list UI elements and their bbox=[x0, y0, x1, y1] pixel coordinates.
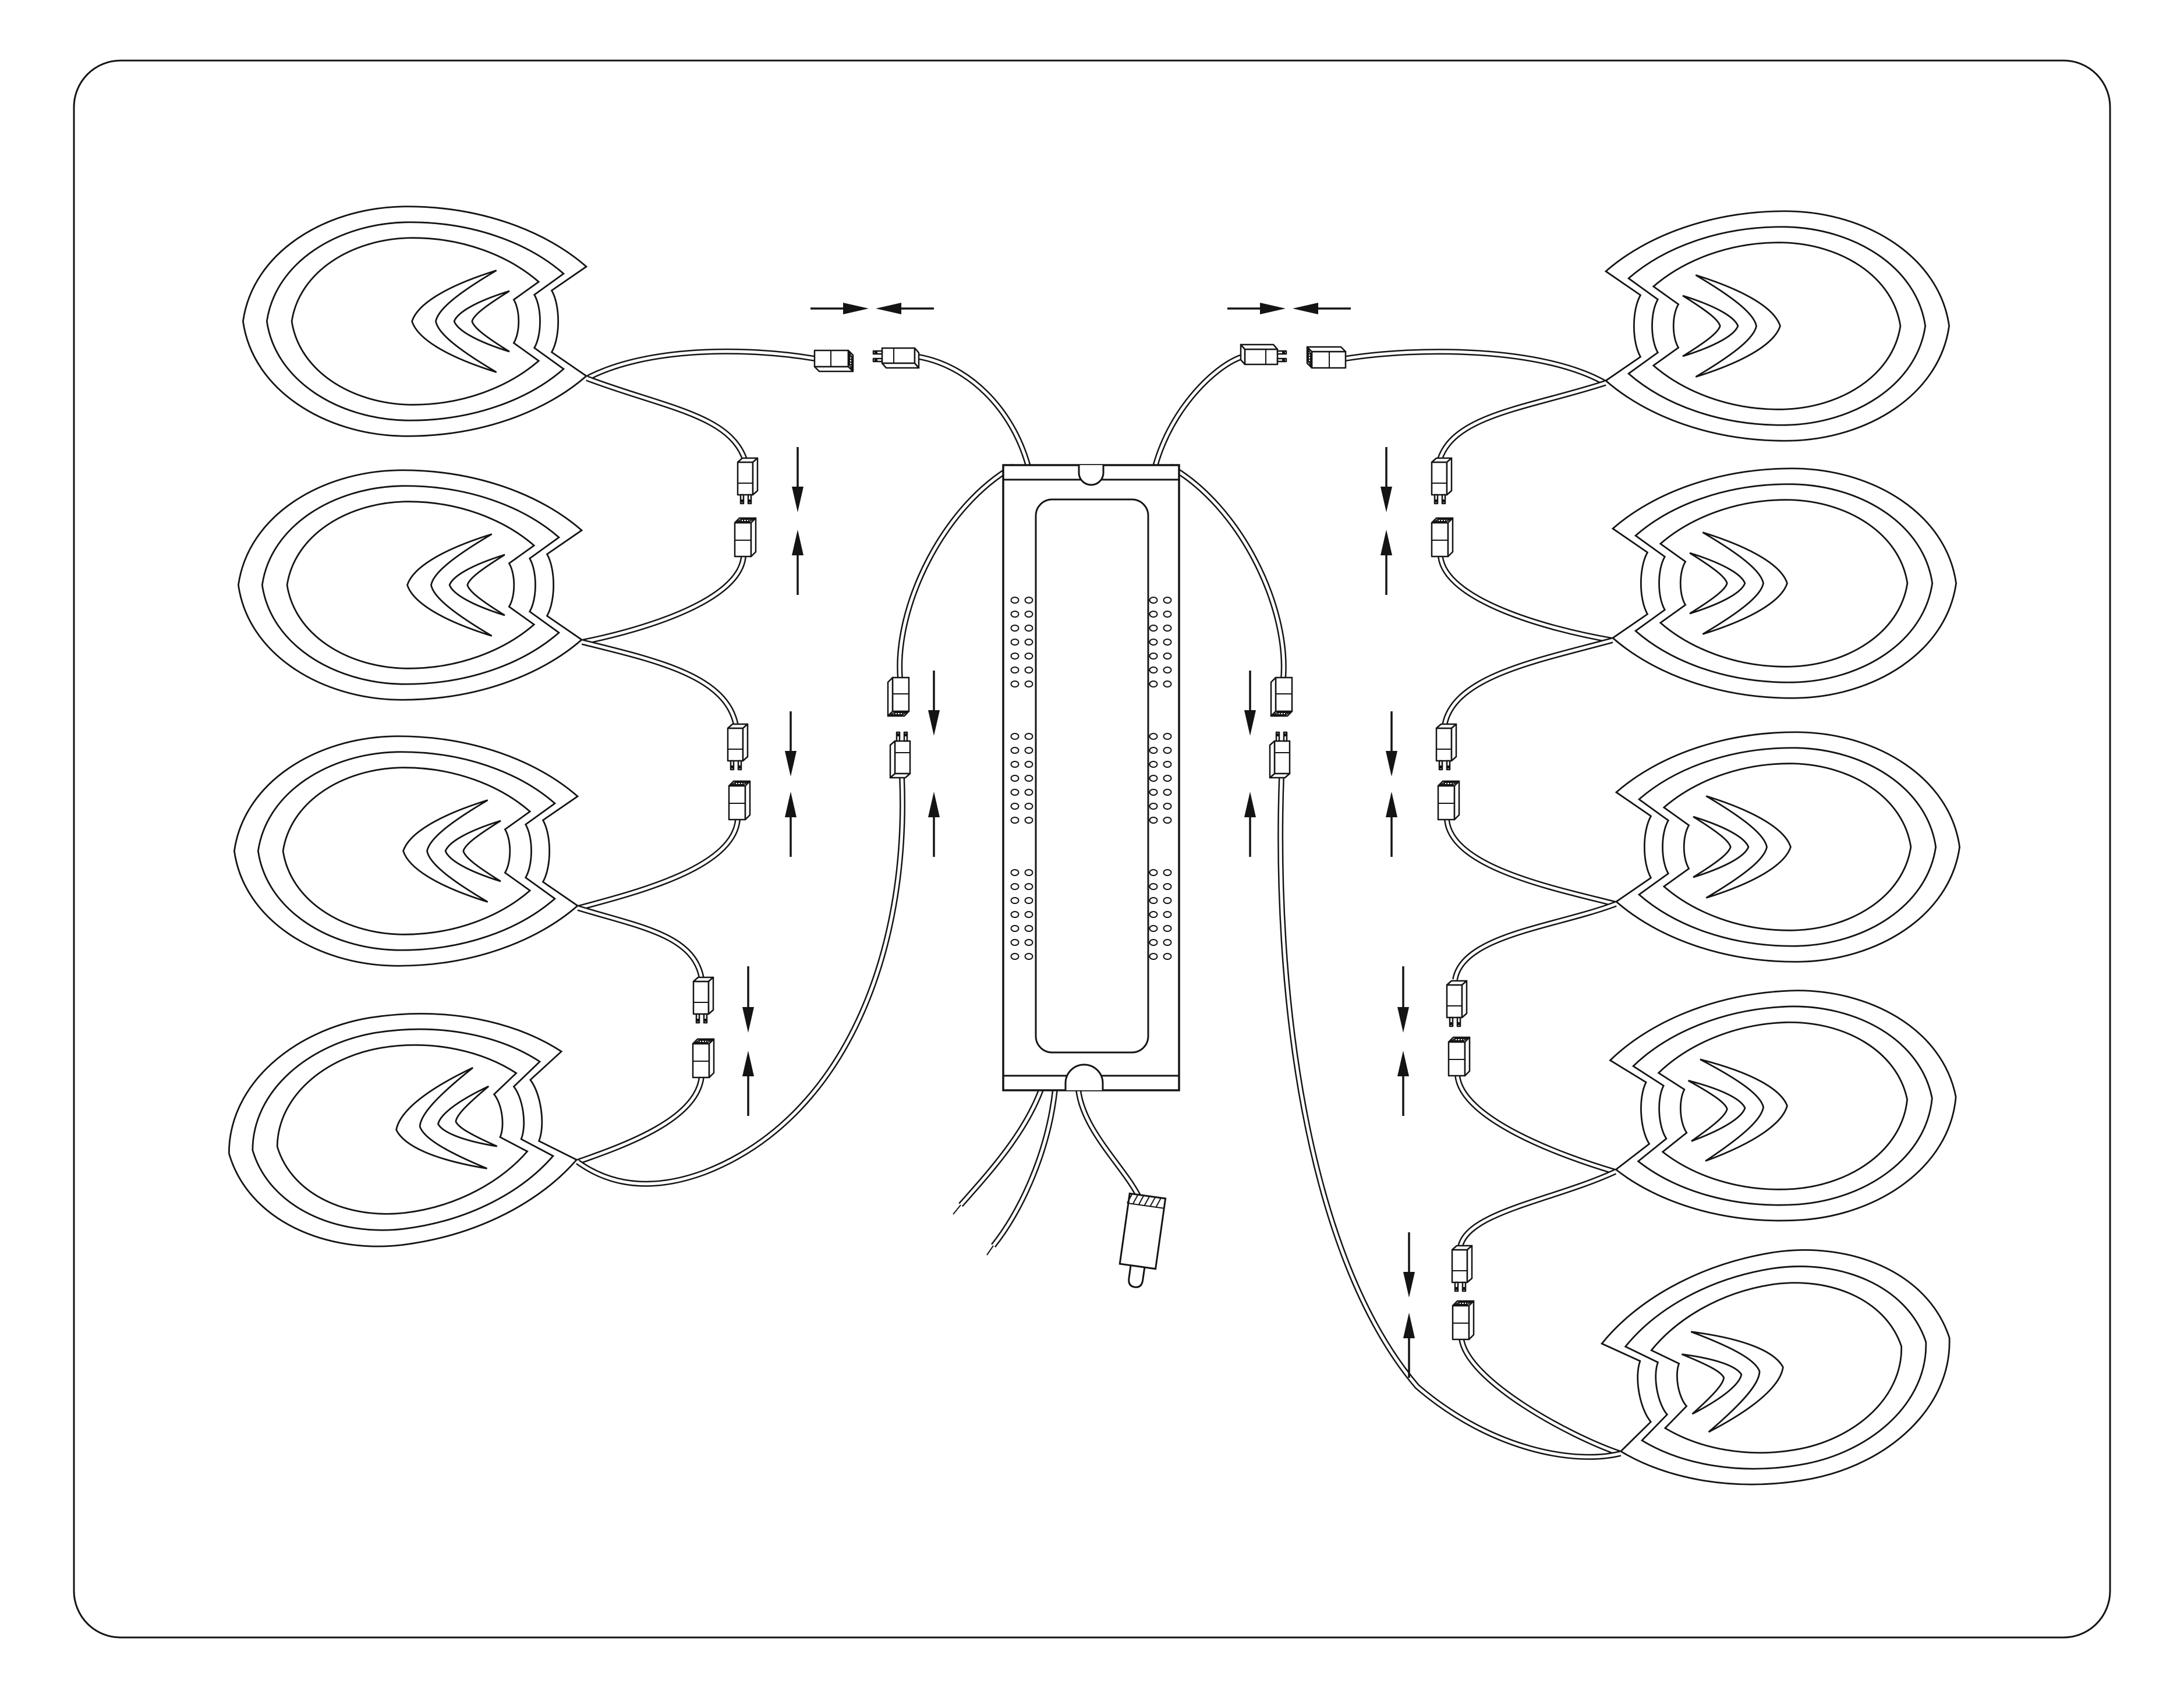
left-a-male-male-connector-icon bbox=[738, 458, 758, 504]
vent-hole bbox=[1150, 789, 1158, 795]
leaf-left-2 bbox=[238, 470, 582, 700]
left-d-female-female-connector-icon bbox=[693, 1039, 714, 1077]
wire-a-to-l2 bbox=[582, 556, 744, 642]
leaf-right-3 bbox=[1616, 732, 1960, 962]
vent-hole bbox=[1164, 761, 1171, 767]
mount-notch-top bbox=[1079, 465, 1103, 485]
vent-hole bbox=[1164, 953, 1171, 959]
vent-hole bbox=[1011, 639, 1019, 645]
left-b-female-female-connector-icon bbox=[888, 678, 909, 716]
wiring-diagram-figure bbox=[0, 0, 2184, 1698]
vent-hole bbox=[1011, 775, 1019, 781]
vent-hole bbox=[1150, 803, 1158, 809]
vent-hole bbox=[1011, 597, 1019, 603]
wire-c-to-r3 bbox=[1447, 820, 1616, 904]
leaf-right-2 bbox=[1613, 469, 1956, 698]
vent-hole bbox=[1164, 611, 1171, 617]
left-a-female-female-connector-icon bbox=[735, 518, 756, 556]
vent-hole bbox=[1164, 667, 1171, 673]
vent-hole bbox=[1025, 898, 1033, 903]
wire-d-to-r4 bbox=[1457, 1075, 1615, 1172]
bare-wire-end-1 bbox=[953, 1205, 961, 1214]
leaf-right-1 bbox=[1606, 211, 1949, 441]
wire-bare-lead-2 bbox=[993, 1090, 1055, 1246]
right-e-male-male-connector-icon bbox=[1452, 1246, 1472, 1291]
vent-hole bbox=[1150, 926, 1158, 931]
vent-hole bbox=[1025, 789, 1033, 795]
vent-hole bbox=[1164, 803, 1171, 809]
vent-hole bbox=[1164, 747, 1171, 753]
vent-hole bbox=[1011, 611, 1019, 617]
wire-l2-to-c bbox=[582, 642, 736, 725]
vent-hole bbox=[1025, 884, 1033, 889]
vent-hole bbox=[1150, 747, 1158, 753]
vent-hole bbox=[1011, 761, 1019, 767]
leaf-light-wiring-diagram bbox=[0, 0, 2184, 1698]
right-d-male-male-connector-icon bbox=[1447, 981, 1467, 1026]
vent-hole bbox=[1025, 639, 1033, 645]
vent-hole bbox=[1011, 667, 1019, 673]
vent-hole bbox=[1150, 597, 1158, 603]
vent-hole bbox=[1011, 803, 1019, 809]
left-d-male-male-connector-icon bbox=[693, 977, 713, 1023]
vent-hole bbox=[1164, 597, 1171, 603]
vent-hole bbox=[1011, 953, 1019, 959]
wire-c-to-l3 bbox=[578, 820, 738, 908]
power-plug-icon bbox=[1116, 1193, 1165, 1289]
right-a-male-male-connector-icon bbox=[1432, 458, 1452, 504]
vent-hole bbox=[1025, 761, 1033, 767]
vent-hole bbox=[1164, 733, 1171, 739]
wire-rb-to-r5 bbox=[1280, 777, 1620, 1457]
right-b-male-male-connector-icon bbox=[1270, 732, 1290, 778]
vent-hole bbox=[1164, 940, 1171, 945]
leaf-right-5 bbox=[1591, 1225, 1969, 1511]
wire-d-to-l4 bbox=[578, 1076, 702, 1162]
vent-hole bbox=[1011, 733, 1019, 739]
vent-hole bbox=[1025, 940, 1033, 945]
vent-hole bbox=[1150, 870, 1158, 875]
wire-r3-to-d bbox=[1455, 904, 1616, 980]
vent-hole bbox=[1025, 681, 1033, 687]
bare-wire-end-2 bbox=[987, 1246, 993, 1255]
leaf-left-3 bbox=[234, 736, 578, 966]
left-c-male-male-connector-icon bbox=[728, 724, 748, 770]
wire-l1-to-a bbox=[587, 378, 745, 459]
vent-hole bbox=[1025, 926, 1033, 931]
vent-hole bbox=[1025, 653, 1033, 659]
vent-hole bbox=[1150, 667, 1158, 673]
vent-hole bbox=[1164, 926, 1171, 931]
vent-hole bbox=[1164, 653, 1171, 659]
vent-hole bbox=[1011, 789, 1019, 795]
vent-hole bbox=[1011, 625, 1019, 631]
vent-hole bbox=[1011, 747, 1019, 753]
top-left-pair-male-male-connector-icon bbox=[873, 348, 919, 368]
wire-l3-to-d bbox=[578, 908, 702, 979]
wire-r2-to-c bbox=[1445, 640, 1612, 725]
wire-a-to-r2 bbox=[1440, 556, 1612, 640]
vent-hole bbox=[1150, 940, 1158, 945]
top-right-pair-female-female-connector-icon bbox=[1307, 347, 1346, 368]
vent-hole bbox=[1011, 884, 1019, 889]
right-c-male-male-connector-icon bbox=[1436, 724, 1456, 770]
right-b-female-female-connector-icon bbox=[1271, 678, 1292, 716]
vent-hole bbox=[1164, 912, 1171, 917]
vent-hole bbox=[1025, 953, 1033, 959]
right-e-female-female-connector-icon bbox=[1453, 1301, 1474, 1339]
vent-hole bbox=[1164, 817, 1171, 823]
top-right-pair-male-male-connector-icon bbox=[1241, 345, 1286, 364]
vent-hole bbox=[1150, 625, 1158, 631]
wire-b-to-l4 bbox=[578, 777, 902, 1184]
wire-driver-to-top-male-r bbox=[1155, 357, 1242, 466]
vent-hole bbox=[1150, 817, 1158, 823]
leaf-left-1 bbox=[243, 207, 586, 436]
vent-hole bbox=[1025, 733, 1033, 739]
vent-hole bbox=[1025, 667, 1033, 673]
vent-hole bbox=[1164, 681, 1171, 687]
page bbox=[0, 0, 2184, 1698]
vent-hole bbox=[1150, 611, 1158, 617]
top-left-pair-female-female-connector-icon bbox=[815, 350, 853, 371]
left-c-female-female-connector-icon bbox=[729, 781, 750, 820]
driver-box bbox=[1003, 465, 1179, 1090]
vent-hole bbox=[1150, 681, 1158, 687]
right-d-female-female-connector-icon bbox=[1449, 1037, 1470, 1076]
vent-hole bbox=[1150, 953, 1158, 959]
vent-hole bbox=[1025, 912, 1033, 917]
vent-hole bbox=[1025, 803, 1033, 809]
wire-rb-to-driver bbox=[1170, 466, 1284, 679]
vent-hole bbox=[1150, 898, 1158, 903]
wire-r1-to-a bbox=[1440, 383, 1605, 459]
wire-e-to-r5 bbox=[1461, 1338, 1620, 1454]
vent-hole bbox=[1164, 639, 1171, 645]
vent-hole bbox=[1011, 870, 1019, 875]
leaf-right-4 bbox=[1607, 982, 1962, 1229]
vent-hole bbox=[1011, 940, 1019, 945]
vent-hole bbox=[1025, 870, 1033, 875]
vent-hole bbox=[1150, 639, 1158, 645]
vent-hole bbox=[1150, 912, 1158, 917]
wire-r4-to-e bbox=[1460, 1172, 1615, 1247]
wire-driver-to-top-male bbox=[919, 357, 1028, 466]
vent-hole bbox=[1150, 761, 1158, 767]
vent-hole bbox=[1150, 884, 1158, 889]
vent-hole bbox=[1150, 653, 1158, 659]
vent-hole bbox=[1164, 898, 1171, 903]
vent-hole bbox=[1150, 733, 1158, 739]
vent-hole bbox=[1011, 817, 1019, 823]
vent-hole bbox=[1164, 775, 1171, 781]
right-c-female-female-connector-icon bbox=[1438, 781, 1459, 820]
vent-hole bbox=[1025, 747, 1033, 753]
vent-hole bbox=[1164, 870, 1171, 875]
vent-hole bbox=[1011, 681, 1019, 687]
vent-hole bbox=[1011, 912, 1019, 917]
vent-hole bbox=[1011, 898, 1019, 903]
vent-hole bbox=[1025, 597, 1033, 603]
vent-hole bbox=[1164, 789, 1171, 795]
vent-hole bbox=[1164, 625, 1171, 631]
leaf-left-4 bbox=[213, 992, 585, 1267]
right-a-female-female-connector-icon bbox=[1432, 518, 1453, 556]
vent-hole bbox=[1164, 884, 1171, 889]
vent-hole bbox=[1025, 817, 1033, 823]
vent-hole bbox=[1025, 625, 1033, 631]
vent-hole bbox=[1150, 775, 1158, 781]
vent-hole bbox=[1025, 611, 1033, 617]
vent-hole bbox=[1011, 926, 1019, 931]
wire-b-to-driver bbox=[900, 466, 1014, 679]
left-b-male-male-connector-icon bbox=[890, 732, 910, 778]
vent-hole bbox=[1025, 775, 1033, 781]
vent-hole bbox=[1011, 653, 1019, 659]
